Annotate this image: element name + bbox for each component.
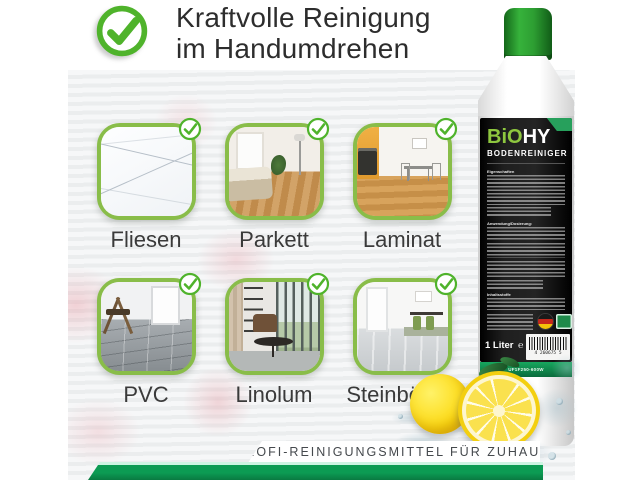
eco-badge-icon [556,314,572,329]
bed-shape [229,166,273,201]
tile-parkett [225,123,324,220]
fine-print-lines [487,261,565,277]
table-leg-shape [428,168,430,181]
fine-print-lines [487,175,565,205]
fine-print-lines [487,280,543,289]
door-shape [151,286,180,326]
brand-suffix: HY [523,126,551,148]
cut-lemon-half [458,371,540,450]
check-circle-icon [94,3,150,59]
tile-linolum [225,278,324,375]
water-drop [548,452,556,460]
table-shape [410,312,443,315]
check-circle-icon [177,271,203,297]
label-section-heading: Inhaltsstoffe [487,292,511,297]
bottle-shoulder [478,56,574,118]
heading-line-2: im Handumdrehen [176,33,409,64]
label-section-heading: Eigenschaften [487,169,514,174]
chair-seat-shape [106,309,130,315]
label-linolum: Linolum [209,382,339,408]
check-circle-icon [305,116,331,142]
brand-prefix: BiO [487,126,523,148]
curtain-shape [229,282,243,357]
lamp-pole-shape [299,141,301,175]
floor-tile-grid [101,319,192,371]
claim-text: PROFI-REINIGUNGSMITTEL FÜR ZUHAUSE [227,445,561,459]
water-drop [556,398,563,405]
bottom-green-bar [88,462,543,480]
fine-print-lines [487,298,565,310]
bottle-label: BiOHY BODENREINIGER Eigenschaften Anwend… [480,118,572,362]
fine-print-lines [487,207,551,218]
product-name: BODENREINIGER [487,149,568,158]
check-circle-icon [177,116,203,142]
label-section-heading: Anwendung/Dosierung: [487,221,532,226]
picture-frame-shape [415,291,432,302]
label-parkett: Parkett [209,227,339,253]
chair-shape [432,163,441,180]
check-circle-icon [433,271,459,297]
lamp-shade-shape [294,134,306,141]
window-shape [236,132,264,170]
claim-banner: PROFI-REINIGUNGSMITTEL FÜR ZUHAUSE [248,441,540,463]
water-drop [566,430,571,435]
tile-laminat [353,123,452,220]
check-circle-icon [433,116,459,142]
green-chair-shape [413,316,421,330]
green-chair-shape [426,316,434,330]
brand-logo: BiOHY [487,126,550,149]
floor-shape [229,351,320,371]
label-pvc: PVC [81,382,211,408]
fine-print-lines [487,243,565,258]
sofa-shape [253,314,278,332]
label-divider [487,163,565,164]
table-pedestal-shape [272,343,275,357]
bottle-cap [504,8,552,60]
plant-shape [271,155,286,175]
tile-fliesen [97,123,196,220]
fine-print-lines [487,227,565,240]
door-shape [366,287,388,332]
lemon-core [493,405,505,417]
label-fliesen: Fliesen [81,227,211,253]
label-laminat: Laminat [337,227,467,253]
check-circle-icon [305,271,331,297]
oven-shape [358,148,377,175]
chair-shape [401,163,410,180]
german-flag-icon [538,314,553,329]
picture-frame-shape [412,138,428,149]
water-drop [398,414,403,419]
heading-line-1: Kraftvolle Reinigung [176,2,431,33]
fine-print-lines [487,314,533,330]
tile-pvc [97,278,196,375]
